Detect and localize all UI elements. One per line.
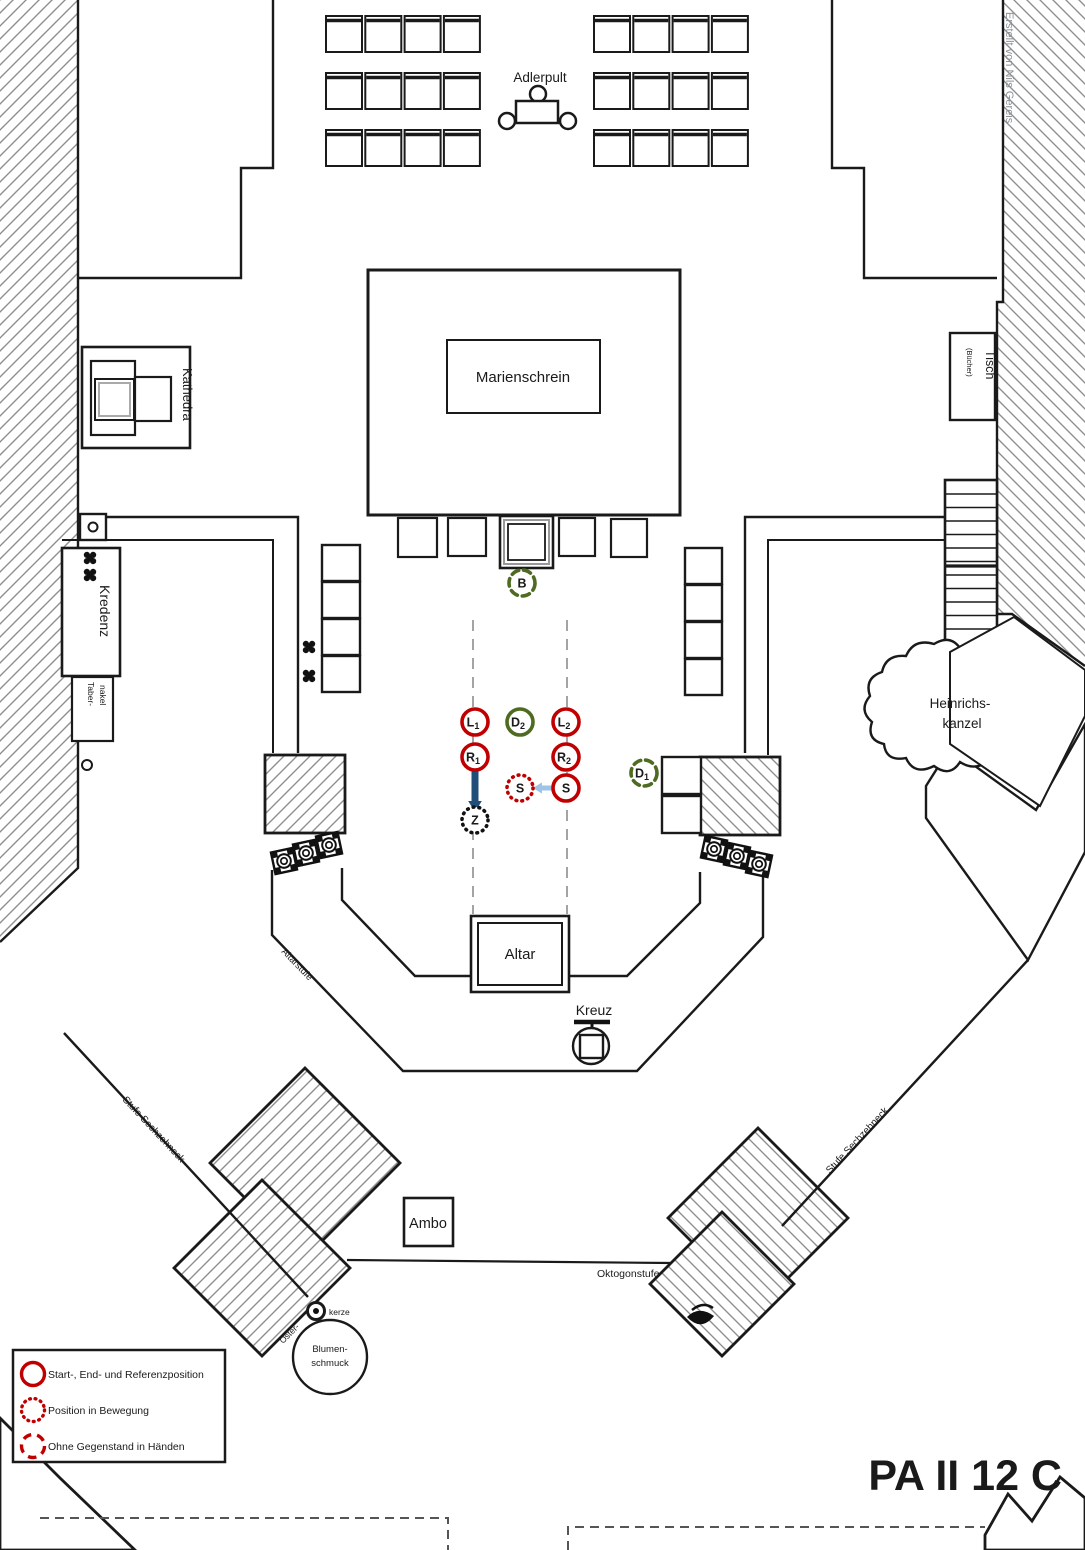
right-chapel-outline [832, 0, 997, 278]
flower-icon [303, 641, 315, 653]
osterkerze-dot [313, 1308, 319, 1314]
tabernakel-label-2: nakel [98, 685, 108, 705]
dashed-outline-left [40, 1518, 448, 1550]
blumenschmuck-circle [293, 1320, 367, 1394]
position-marker-L2: L2 [553, 709, 579, 735]
dashed-outline-right [568, 1527, 985, 1550]
position-marker-S-moving: S [507, 775, 533, 801]
legend-label: Position in Bewegung [48, 1405, 149, 1417]
kathedra-label: Kathedra [180, 368, 195, 422]
tisch-label: Tisch [983, 350, 997, 379]
position-markers: BL1D2L2R1R2SSD1Z [462, 570, 657, 833]
left-chapel-outline [78, 0, 273, 278]
walls [0, 0, 1085, 1550]
position-marker-S: S [553, 775, 579, 801]
oktogon-step-line [347, 1260, 671, 1263]
adlerpult-icon [499, 86, 576, 129]
ambo-label: Ambo [409, 1216, 447, 1232]
svg-text:S: S [562, 782, 570, 796]
candle-stand-icon [271, 848, 297, 874]
right-pillar-block [700, 757, 780, 835]
position-marker-R1: R1 [462, 744, 488, 770]
adlerpult-label: Adlerpult [513, 70, 567, 85]
position-marker-Z: Z [462, 807, 488, 833]
svg-text:S: S [516, 782, 524, 796]
floor-plan-svg: BL1D2L2R1R2SSD1Z Adlerpult Marienschrein… [0, 0, 1085, 1550]
right-square-column [685, 548, 722, 695]
osterkerze-label-2: kerze [329, 1307, 350, 1317]
candle-stand-icon [724, 843, 750, 869]
svg-text:Z: Z [471, 814, 479, 828]
structure-lines [40, 0, 1028, 1550]
svg-text:B: B [517, 577, 526, 591]
right-bench-squares [662, 757, 701, 833]
step-line-right [782, 960, 1028, 1226]
flower-icon [303, 670, 315, 682]
stairs [945, 480, 997, 652]
candle-stand-icon [316, 832, 342, 858]
oktogonstufe-label: Oktogonstufe [597, 1268, 660, 1280]
tabernakel-label-1: Taber- [86, 682, 96, 706]
stufe-sechzehneck-left-label: Stufe Sechzehneck [120, 1095, 187, 1166]
position-marker-D1: D1 [631, 760, 657, 786]
left-wall-hatch [0, 0, 78, 942]
kredenz-label: Kredenz [97, 585, 113, 637]
position-marker-B: B [509, 570, 535, 596]
position-marker-R2: R2 [553, 744, 579, 770]
credit-text: Erstellt von Nils Gereis [1003, 12, 1015, 124]
legend: Start-, End- und Referenzposition Positi… [13, 1350, 225, 1462]
legend-label: Ohne Gegenstand in Händen [48, 1441, 185, 1453]
candle-stand-icon [746, 851, 772, 877]
platform-candles [398, 516, 647, 568]
legend-symbol-solid [22, 1363, 45, 1386]
left-pillar-block [265, 755, 345, 833]
stufe-sechzehneck-right-label: Stufe Sechzehneck [824, 1105, 891, 1176]
legend-label: Start-, End- und Referenzposition [48, 1369, 204, 1381]
wall-niche-circle [89, 523, 98, 532]
kreuz-label: Kreuz [576, 1002, 613, 1018]
blumenschmuck-label-2: schmuck [311, 1358, 349, 1369]
altar-step-inner-left [342, 868, 471, 976]
altar-label: Altar [505, 946, 536, 963]
page-title: PA II 12 C [868, 1452, 1062, 1500]
marienschrein-label: Marienschrein [476, 369, 570, 386]
altarstufe-label: Altarstufe [279, 946, 315, 983]
legend-symbol-dashed [22, 1435, 45, 1458]
heinrichskanzel-label-2: kanzel [942, 716, 981, 731]
candle-stand-icon [293, 840, 319, 866]
blumenschmuck-label-1: Blumen- [312, 1344, 347, 1355]
position-marker-D2: D2 [507, 709, 533, 735]
kathedra [82, 347, 190, 448]
small-wall-circle [82, 760, 92, 770]
altar-step-inner-right [569, 872, 700, 976]
kreuz-icon [573, 1022, 610, 1064]
legend-symbol-dotted [22, 1399, 45, 1422]
candle-stand-icon [701, 836, 727, 862]
position-marker-L1: L1 [462, 709, 488, 735]
heinrichskanzel-label-1: Heinrichs- [930, 696, 991, 711]
left-square-column [322, 545, 360, 692]
tisch-sub-label: (Bücher) [965, 348, 974, 377]
floor-plan: BL1D2L2R1R2SSD1Z Adlerpult Marienschrein… [0, 0, 1085, 1550]
